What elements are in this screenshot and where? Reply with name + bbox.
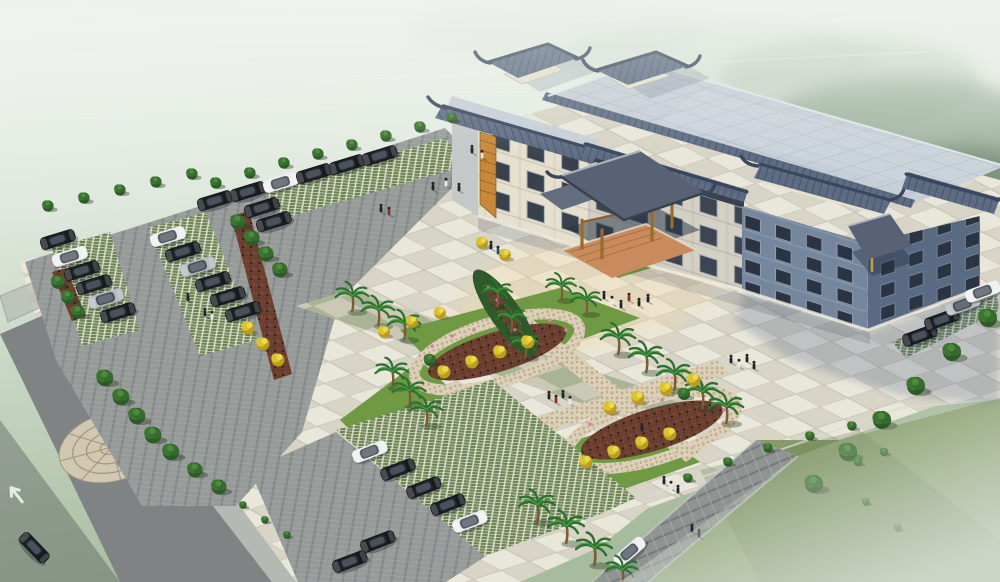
architectural-rendering <box>0 0 1000 582</box>
rendering-canvas <box>0 0 1000 582</box>
top-mist <box>0 0 1000 160</box>
